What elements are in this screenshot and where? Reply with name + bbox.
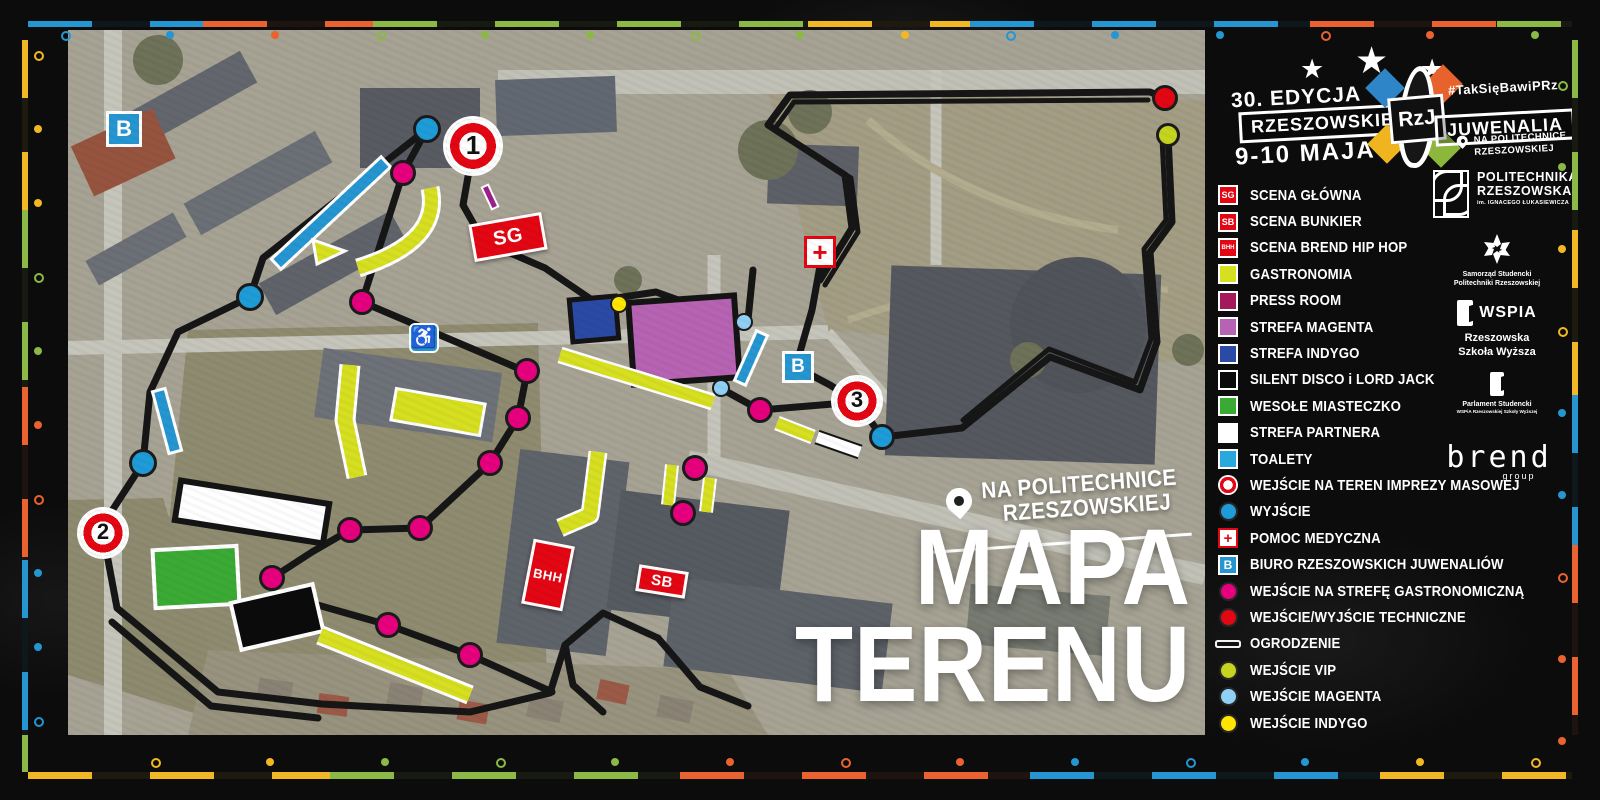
map-office-b: B <box>106 111 142 147</box>
legend-square-icon <box>1217 290 1239 312</box>
map-exit-dot <box>129 449 157 477</box>
map-office-b: B <box>782 351 814 383</box>
frame-dot <box>266 758 274 766</box>
map-gastro-dot <box>514 358 540 384</box>
legend-item-21: WEJŚCIE INDYGO <box>1217 710 1537 736</box>
frame-strip-segment <box>203 21 373 27</box>
partner-name: Parlament Studencki <box>1437 401 1557 408</box>
map-exit-dot <box>869 424 895 450</box>
frame-strip-segment <box>28 772 330 779</box>
frame-dot <box>1531 31 1539 39</box>
frame-dot <box>481 31 489 39</box>
map-magenta-entry-dot <box>735 313 753 331</box>
location-pin-icon <box>1454 133 1470 149</box>
frame-dot <box>34 569 42 577</box>
legend-circle-icon <box>1217 606 1239 628</box>
frame-dot <box>376 31 386 41</box>
legend-circle-icon <box>1217 580 1239 602</box>
frame-dot <box>34 125 42 133</box>
partner-sub: Rzeszowska <box>1437 332 1557 346</box>
frame-dot <box>34 495 44 505</box>
legend-stage-icon: SB <box>1217 211 1239 233</box>
frame-strip-segment <box>22 210 28 387</box>
map-stage-sb: SB <box>635 564 689 598</box>
frame-dot <box>1321 31 1331 41</box>
partner-sub: WSPiA Rzeszowskiej Szkoły Wyższej <box>1437 409 1557 414</box>
entrance-number: 2 <box>97 521 109 543</box>
frame-dot <box>1558 491 1566 499</box>
map-vip-dot <box>1156 123 1180 147</box>
legend-label: WEJŚCIE NA STREFĘ GASTRONOMICZNĄ <box>1250 583 1524 600</box>
frame-dot <box>841 758 851 768</box>
legend-label: STREFA MAGENTA <box>1250 319 1373 336</box>
frame-strip-segment <box>1380 772 1572 779</box>
legend-square-icon <box>1217 448 1239 470</box>
frame-dot <box>1426 31 1434 39</box>
frame-strip-segment <box>680 772 1030 779</box>
map-gastro-dot <box>407 515 433 541</box>
map-stage-sg: SG <box>468 212 547 262</box>
parlament-logo-icon <box>1490 372 1504 396</box>
map-entrance-1: 1 <box>446 119 500 173</box>
frame-dot <box>1558 409 1566 417</box>
map-gastro-dot <box>670 500 696 526</box>
frame-strip-segment <box>1497 21 1572 27</box>
map-entrance-3: 3 <box>834 378 880 424</box>
legend-label: GASTRONOMIA <box>1250 266 1352 283</box>
map-title: MAPA TERENU <box>795 518 1191 712</box>
frame-dot <box>956 758 964 766</box>
legend-label: STREFA INDYGO <box>1250 345 1360 362</box>
frame-dot <box>34 51 44 61</box>
map-gastro-dot <box>682 455 708 481</box>
frame-strip-segment <box>28 21 203 27</box>
frame-dot <box>1531 758 1541 768</box>
info-panel: ★ ★ ★ 30. EDYCJA RZESZOWSKIE RzJ JUWENAL… <box>1205 0 1600 800</box>
legend-square-icon <box>1217 395 1239 417</box>
map-medical-point: + <box>804 236 836 268</box>
partner-sub: im. IGNACEGO ŁUKASIEWICZA <box>1477 200 1578 206</box>
map-title-line2: TERENU <box>795 615 1191 712</box>
legend-label: OGRODZENIE <box>1250 635 1341 652</box>
frame-dot <box>496 758 506 768</box>
frame-dot <box>381 758 389 766</box>
legend-square-icon <box>1217 422 1239 444</box>
legend-circle-icon <box>1217 686 1239 708</box>
legend-fence-icon <box>1217 633 1239 655</box>
partner-wspia: WSPIA Rzeszowska Szkoła Wyższa <box>1437 300 1557 360</box>
map-gastro-dot <box>349 289 375 315</box>
map-gastro-dot <box>747 397 773 423</box>
legend-stage-icon: BHH <box>1217 237 1239 259</box>
frame-strip-segment <box>22 735 28 772</box>
entrance-number: 1 <box>466 132 480 158</box>
legend-label: STREFA PARTNERA <box>1250 424 1380 441</box>
frame-dot <box>1558 655 1566 663</box>
frame-dot <box>34 643 42 651</box>
legend-office-icon: B <box>1217 554 1239 576</box>
legend-item-20: WEJŚCIE MAGENTA <box>1217 683 1537 709</box>
legend-label: BIURO RZESZOWSKICH JUWENALIÓW <box>1250 556 1504 573</box>
frame-strip-segment <box>808 21 970 27</box>
partner-sub: Szkoła Wyższa <box>1437 346 1557 360</box>
legend-label: WEJŚCIE INDYGO <box>1250 715 1368 732</box>
frame-strip-segment <box>1572 545 1578 735</box>
map-gastro-dot <box>505 405 531 431</box>
aerial-map: 123BB+♿SGSBBHH NA POLITECHNICE RZESZOWSK… <box>68 30 1205 735</box>
partner-name: RZESZOWSKA <box>1477 184 1578 198</box>
legend-item-16: WEJŚCIE NA STREFĘ GASTRONOMICZNĄ <box>1217 578 1537 604</box>
juwenalia-map-poster: { "palette":{"red":"#e30613","yellow_zon… <box>0 0 1600 800</box>
map-gastro-dot <box>457 642 483 668</box>
frame-dot <box>1558 327 1568 337</box>
partner-name: Politechniki Rzeszowskiej <box>1437 279 1557 288</box>
politechnika-logo-icon <box>1433 170 1469 218</box>
frame-dot <box>1558 163 1566 171</box>
frame-dot <box>1216 31 1224 39</box>
legend-label: WYJŚCIE <box>1250 503 1311 520</box>
frame-strip-segment <box>373 21 808 27</box>
frame-dot <box>1558 573 1568 583</box>
event-dates: 9-10 MAJA <box>1234 136 1376 171</box>
samorzad-logo-icon <box>1480 232 1514 266</box>
frame-strip-segment <box>330 772 680 779</box>
map-entrance-2: 2 <box>80 510 126 556</box>
partner-name: POLITECHNIKA <box>1477 170 1578 184</box>
frame-dot <box>34 347 42 355</box>
legend-square-icon <box>1217 369 1239 391</box>
legend-label: SCENA BUNKIER <box>1250 213 1362 230</box>
frame-dot <box>34 273 44 283</box>
partner-name: Samorząd Studencki <box>1437 270 1557 279</box>
map-title-line1: MAPA <box>795 518 1191 615</box>
map-stage-bhh: BHH <box>521 539 575 612</box>
frame-dot <box>1558 737 1566 745</box>
map-gastro-dot <box>259 565 285 591</box>
frame-dot <box>611 758 619 766</box>
frame-strip-segment <box>1310 21 1497 27</box>
map-magenta-entry-dot <box>712 379 730 397</box>
legend-label: SCENA GŁÓWNA <box>1250 187 1362 204</box>
frame-dot <box>586 31 594 39</box>
map-gastro-dot <box>375 612 401 638</box>
frame-dot <box>796 31 804 39</box>
frame-dot <box>1301 758 1309 766</box>
entrance-number: 3 <box>851 389 863 411</box>
frame-dot <box>166 31 174 39</box>
frame-dot <box>34 717 44 727</box>
frame-dot <box>1558 245 1566 253</box>
legend-entrance-icon <box>1217 474 1239 496</box>
map-gastro-dot <box>477 450 503 476</box>
legend-item-13: WYJŚCIE <box>1217 499 1537 525</box>
legend-item-15: BBIURO RZESZOWSKICH JUWENALIÓW <box>1217 551 1537 577</box>
partner-parlament: Parlament Studencki WSPiA Rzeszowskiej S… <box>1437 372 1557 414</box>
partner-politechnika: POLITECHNIKA RZESZOWSKA im. IGNACEGO ŁUK… <box>1433 170 1578 218</box>
map-indygo-entry-dot <box>610 295 628 313</box>
frame-dot <box>1558 81 1568 91</box>
legend-label: POMOC MEDYCZNA <box>1250 530 1381 547</box>
partner-name: brend <box>1439 440 1559 475</box>
frame-dot <box>1071 758 1079 766</box>
frame-dot <box>1416 758 1424 766</box>
legend-square-icon <box>1217 343 1239 365</box>
frame-strip-segment <box>1572 230 1578 395</box>
frame-strip-segment <box>1572 395 1578 545</box>
frame-strip-segment <box>1572 40 1578 230</box>
map-gastro-dot <box>390 160 416 186</box>
frame-strip-segment <box>22 560 28 735</box>
map-gastro-dot <box>337 517 363 543</box>
legend-circle-icon <box>1217 501 1239 523</box>
partner-samorzad: Samorząd Studencki Politechniki Rzeszows… <box>1437 232 1557 288</box>
legend-label: PRESS ROOM <box>1250 292 1341 309</box>
frame-dot <box>34 421 42 429</box>
legend-item-18: OGRODZENIE <box>1217 631 1537 657</box>
legend-circle-icon <box>1217 712 1239 734</box>
legend-item-19: WEJŚCIE VIP <box>1217 657 1537 683</box>
frame-dot <box>901 31 909 39</box>
frame-dot <box>151 758 161 768</box>
frame-dot <box>726 758 734 766</box>
legend-label: WEJŚCIE MAGENTA <box>1250 688 1381 705</box>
legend-square-icon <box>1217 263 1239 285</box>
frame-dot <box>1186 758 1196 768</box>
legend-label: SCENA BREND HIP HOP <box>1250 239 1407 256</box>
frame-dot <box>271 31 279 39</box>
frame-dot <box>1006 31 1016 41</box>
legend-medical-icon: + <box>1217 527 1239 549</box>
frame-strip-segment <box>970 21 1310 27</box>
legend-label: WESOŁE MIASTECZKO <box>1250 398 1401 415</box>
map-exit-dot <box>413 115 441 143</box>
wspia-logo-icon <box>1457 300 1473 326</box>
frame-strip-segment <box>22 387 28 560</box>
frame-strip-segment <box>1030 772 1380 779</box>
legend-label: WEJŚCIE VIP <box>1250 662 1336 679</box>
map-exit-dot <box>236 283 264 311</box>
map-technical-dot <box>1152 85 1178 111</box>
map-accessibility-point: ♿ <box>409 323 439 353</box>
legend-stage-icon: SG <box>1217 184 1239 206</box>
legend-label: WEJŚCIE/WYJŚCIE TECHNICZNE <box>1250 609 1466 626</box>
frame-strip-segment <box>22 40 28 210</box>
frame-dot <box>691 31 701 41</box>
header-location: NA POLITECHNICE RZESZOWSKIEJ <box>1456 130 1567 159</box>
legend-item-14: +POMOC MEDYCZNA <box>1217 525 1537 551</box>
legend-item-17: WEJŚCIE/WYJŚCIE TECHNICZNE <box>1217 604 1537 630</box>
star-icon: ★ <box>1300 56 1324 83</box>
legend-circle-icon <box>1217 659 1239 681</box>
frame-dot <box>61 31 71 41</box>
partner-name: WSPIA <box>1479 304 1536 322</box>
partner-brend: brend group <box>1439 440 1559 481</box>
frame-dot <box>1111 31 1119 39</box>
legend-square-icon <box>1217 316 1239 338</box>
frame-dot <box>34 199 42 207</box>
legend-label: TOALETY <box>1250 451 1313 468</box>
legend-label: SILENT DISCO i LORD JACK <box>1250 371 1435 388</box>
